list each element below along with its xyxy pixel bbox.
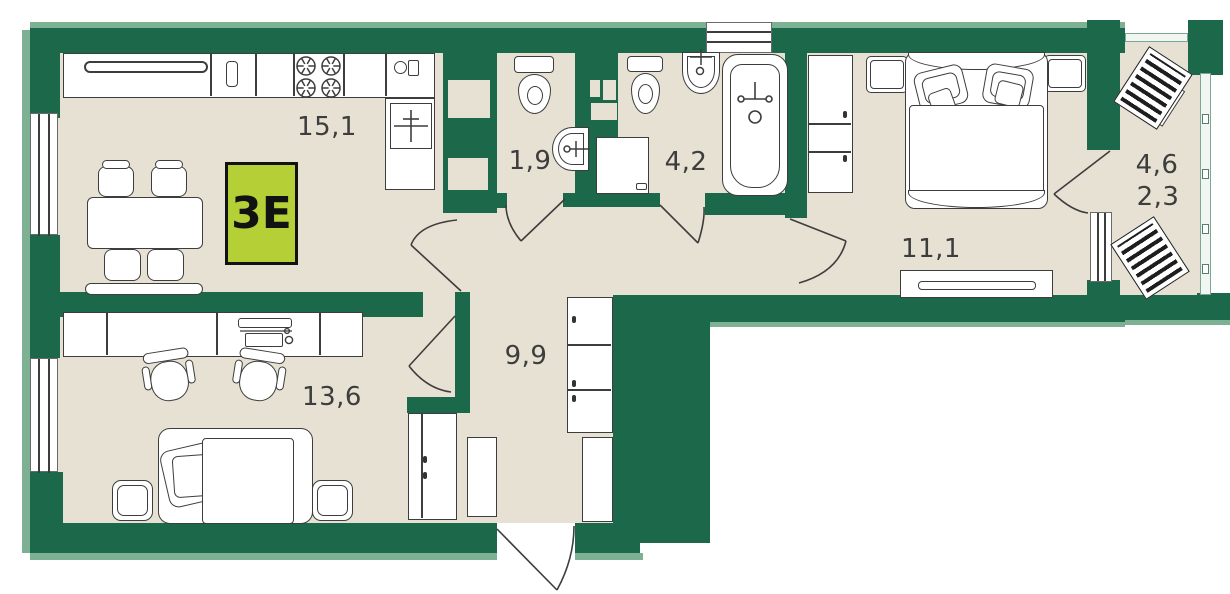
hall-cabinet xyxy=(467,437,497,517)
vent-shaft-opening xyxy=(603,80,616,100)
window-glazing-line xyxy=(707,31,771,33)
desk-divider xyxy=(319,313,321,355)
wash-basin-inner xyxy=(558,133,584,165)
counter-divider xyxy=(343,54,345,96)
wardrobe-divider xyxy=(568,344,611,346)
side-table-inner xyxy=(117,485,148,516)
wardrobe-handle xyxy=(572,395,576,402)
wall xyxy=(613,295,710,543)
dining-chair-back xyxy=(102,160,130,169)
dining-chair xyxy=(151,166,187,197)
window xyxy=(30,358,58,472)
window xyxy=(30,113,58,235)
toilet-tank xyxy=(627,56,663,72)
balcony-door-window xyxy=(1090,212,1112,282)
kettle xyxy=(394,61,407,74)
wardrobe-divider xyxy=(421,414,423,518)
side-table-inner xyxy=(317,485,348,516)
sofa-bed-mattress xyxy=(202,438,294,524)
vent-shaft-opening xyxy=(448,80,490,118)
wall xyxy=(30,523,497,553)
wall xyxy=(1087,280,1120,298)
entrance-opening xyxy=(497,523,575,560)
balcony-glazing xyxy=(1200,73,1211,295)
nightstand-inner xyxy=(1048,59,1082,88)
window-glazing-line xyxy=(1097,213,1099,281)
vent-shaft-opening xyxy=(448,158,488,190)
bed-blanket xyxy=(909,105,1044,193)
bathtub-inner xyxy=(730,64,780,188)
nightstand-inner xyxy=(870,60,904,89)
wardrobe-handle xyxy=(423,456,427,463)
counter-divider xyxy=(385,54,387,96)
kettle-handle xyxy=(408,60,419,76)
wall xyxy=(710,295,1125,322)
hall-wardrobe xyxy=(567,297,613,433)
counter-divider xyxy=(255,54,257,96)
window-glazing-line xyxy=(1104,213,1106,281)
tv xyxy=(918,281,1036,290)
vent-shaft-opening xyxy=(591,103,617,120)
window-glazing-line xyxy=(38,114,40,236)
washing-machine-door xyxy=(636,183,647,190)
dining-table xyxy=(87,197,203,249)
window-glazing-line xyxy=(48,114,50,236)
wall xyxy=(30,28,1125,53)
counter-divider xyxy=(210,54,212,96)
kitchen-shelf xyxy=(84,61,208,73)
dining-chair xyxy=(147,249,184,281)
window-glazing-line xyxy=(48,359,50,473)
desk-monitor xyxy=(238,318,292,328)
dining-chair xyxy=(104,249,141,281)
wall xyxy=(455,292,470,412)
dining-chair xyxy=(98,166,134,197)
dining-bench xyxy=(85,283,203,295)
wall xyxy=(1120,295,1230,320)
wardrobe-handle xyxy=(423,472,427,479)
desk-divider xyxy=(106,313,108,355)
wall xyxy=(1087,20,1120,150)
bathroom-window xyxy=(706,22,772,53)
wall-edge xyxy=(710,322,1125,327)
window-glazing-line xyxy=(38,359,40,473)
vent-shaft-opening xyxy=(590,80,600,97)
counter-divider xyxy=(293,54,295,96)
wall-edge xyxy=(1120,320,1230,325)
wardrobe-handle xyxy=(843,111,847,118)
wardrobe xyxy=(808,55,853,193)
wall xyxy=(443,193,507,207)
office-chair xyxy=(139,346,199,407)
glazing-mullion xyxy=(1202,169,1209,179)
desk-keyboard xyxy=(245,333,283,347)
kitchen-counter xyxy=(63,53,435,98)
room-area-label: 9,9 xyxy=(505,341,548,371)
balcony-glazing xyxy=(1125,33,1188,42)
glazing-mullion xyxy=(1202,114,1209,124)
wall xyxy=(563,193,660,207)
apartment-type-badge: 3Е xyxy=(225,162,298,265)
wardrobe-handle xyxy=(572,380,576,387)
toilet-bowl-inner xyxy=(527,86,543,105)
wall xyxy=(785,52,807,218)
desk xyxy=(63,312,363,357)
hall-cabinet xyxy=(582,437,613,522)
wardrobe-divider xyxy=(568,389,611,391)
wall xyxy=(407,397,470,413)
desk-divider xyxy=(216,313,218,355)
wall-edge xyxy=(22,30,30,553)
glazing-mullion xyxy=(1202,224,1209,234)
office-chair xyxy=(229,346,289,407)
hall-wardrobe xyxy=(408,413,457,520)
wardrobe-handle xyxy=(843,155,847,162)
wardrobe-divider xyxy=(809,151,851,153)
room-area-label: 15,1 xyxy=(297,112,357,142)
wardrobe-handle xyxy=(572,316,576,323)
dining-chair-back xyxy=(155,160,183,169)
toilet-bowl-inner xyxy=(638,84,653,104)
apartment-type-label: 3Е xyxy=(231,188,292,239)
wardrobe-divider xyxy=(809,123,851,125)
kitchen-sink xyxy=(390,103,432,149)
balcony-area-label: 2,3 xyxy=(1137,182,1180,212)
balcony-area-label: 4,6 xyxy=(1136,150,1179,180)
room-area-label: 4,2 xyxy=(665,147,708,177)
wall xyxy=(1188,20,1223,75)
room-area-label: 13,6 xyxy=(302,382,362,412)
window-glazing-line xyxy=(707,41,771,43)
glazing-mullion xyxy=(1202,264,1209,274)
room-area-label: 11,1 xyxy=(901,234,961,264)
office-chair-seat xyxy=(236,358,280,403)
wall xyxy=(30,28,60,118)
fridge-handle xyxy=(226,61,238,87)
room-area-label: 1,9 xyxy=(509,146,552,176)
floor-plan: 3Е xyxy=(0,0,1230,594)
toilet-tank xyxy=(514,56,554,73)
